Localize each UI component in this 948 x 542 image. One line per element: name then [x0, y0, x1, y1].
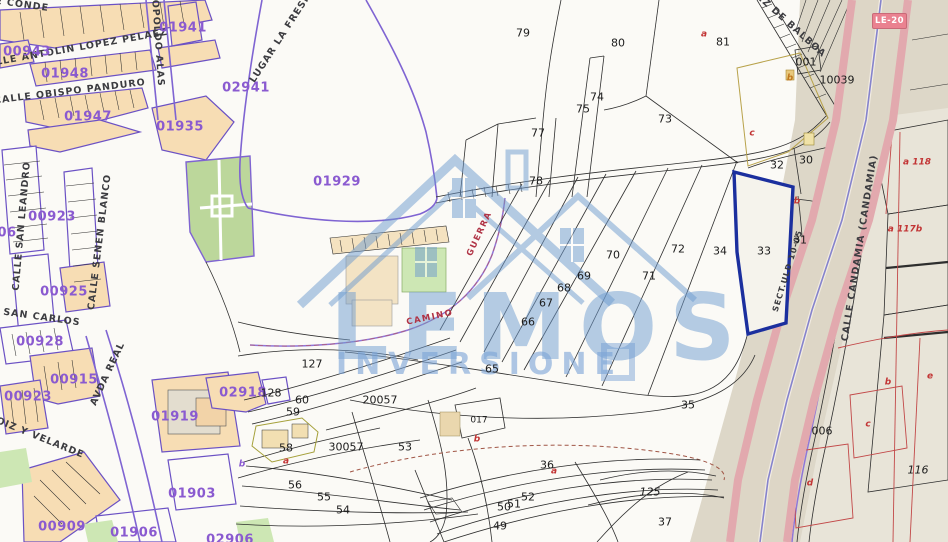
parcel-number-71: 71 [642, 271, 656, 282]
block-code-00928: 00928 [16, 336, 64, 349]
parcel-number-77: 77 [531, 128, 545, 139]
sub-letter-a: a [551, 468, 557, 477]
parcel-number-51: 51 [507, 499, 521, 510]
map-labels: E CONDECALLE ANTOLIN LOPEZ PELAEZCALLE O… [0, 0, 948, 542]
path-label-camino: CAMINO [406, 309, 455, 327]
parcel-number-68: 68 [557, 283, 571, 294]
sub-letter-a-117b: a 117b [888, 226, 922, 235]
parcel-number-67: 67 [539, 298, 553, 309]
parcel-number-81: 81 [716, 37, 730, 48]
street-name-daoiz-y-velarde: DAOIZ Y VELARDE [0, 410, 85, 460]
parcel-number-20057: 20057 [363, 395, 398, 406]
street-name-ez-de-balboa: EZ DE BALBOA [755, 0, 828, 59]
parcel-number-54: 54 [336, 505, 350, 516]
block-code-00925: 00925 [40, 286, 88, 299]
sub-letter-b: b [885, 379, 891, 388]
path-label-guerra: GUERRA [466, 210, 494, 257]
block-code-00909: 00909 [38, 521, 86, 534]
parcel-number-49: 49 [493, 521, 507, 532]
parcel-number-30: 30 [799, 155, 813, 166]
parcel-number-58: 58 [279, 443, 293, 454]
block-code-02906: 02906 [206, 534, 254, 542]
block-code-00943: 00943 [3, 46, 51, 59]
block-code-02941: 02941 [222, 82, 270, 95]
parcel-number-60: 60 [295, 395, 309, 406]
sub-letter-b: b [787, 75, 793, 84]
sub-letter-a-118: a 118 [903, 159, 931, 168]
parcel-number-001: 001 [796, 57, 817, 68]
cadastral-map: LEMOS INVERSIONE LE-20 E CONDECALLE ANTO… [0, 0, 948, 542]
sub-letter-b: b [474, 436, 480, 445]
block-code-01947: 01947 [64, 111, 112, 124]
block-code-01935: 01935 [156, 121, 204, 134]
parcel-number-75: 75 [576, 104, 590, 115]
block-code-00915: 00915 [50, 374, 98, 387]
block-code-00923: 00923 [4, 391, 52, 404]
parcel-number-55: 55 [317, 492, 331, 503]
street-name-calle-obispo-panduro: CALLE OBISPO PANDURO [0, 78, 146, 106]
parcel-number-32: 32 [770, 160, 784, 171]
street-name-calle-senen-blanco: CALLE SENEN BLANCO [87, 173, 113, 310]
parcel-number-125: 125 [640, 487, 661, 498]
block-code-01948: 01948 [41, 68, 89, 81]
parcel-number-128: 128 [261, 388, 282, 399]
street-name-e-conde: E CONDE [0, 0, 49, 13]
parcel-number-70: 70 [606, 250, 620, 261]
parcel-number-37: 37 [658, 517, 672, 528]
sub-letter-c: c [865, 421, 870, 430]
sub-letter-a: a [701, 31, 707, 40]
block-code-01941: 01941 [159, 22, 207, 35]
parcel-number-53: 53 [398, 442, 412, 453]
parcel-number-80: 80 [611, 38, 625, 49]
parcel-number-69: 69 [577, 271, 591, 282]
parcel-number-73: 73 [658, 114, 672, 125]
parcel-number-56: 56 [288, 480, 302, 491]
parcel-number-66: 66 [521, 317, 535, 328]
sub-letter-a: a [283, 458, 289, 467]
parcel-number-35: 35 [681, 400, 695, 411]
parcel-number-59: 59 [286, 407, 300, 418]
block-code-01929: 01929 [313, 176, 361, 189]
parcel-number-33: 33 [757, 246, 771, 257]
parcel-number-30057: 30057 [329, 442, 364, 453]
block-code-01903: 01903 [168, 488, 216, 501]
parcel-number-52: 52 [521, 492, 535, 503]
block-code-01919: 01919 [151, 411, 199, 424]
street-name-e-san-carlos: E SAN CARLOS [0, 306, 81, 328]
sub-letter-b: b [239, 461, 245, 470]
parcel-number-34: 34 [713, 246, 727, 257]
parcel-number-79: 79 [516, 28, 530, 39]
parcel-number-006: 006 [812, 426, 833, 437]
parcel-number-72: 72 [671, 244, 685, 255]
parcel-number-116: 116 [908, 465, 929, 476]
parcel-number-65: 65 [485, 364, 499, 375]
street-name-lugar-la-fresn: LUGAR LA FRESN [248, 0, 313, 85]
sub-letter-c: c [749, 130, 754, 139]
parcel-number-74: 74 [590, 92, 604, 103]
block-code-00923: 00923 [28, 211, 76, 224]
block-code-06: 06 [0, 227, 17, 240]
street-name-calle-candamia-candamia-: CALLE CANDAMIA (CANDAMIA) [841, 154, 880, 342]
sub-letter-e: e [927, 373, 933, 382]
parcel-number-10039: 10039 [820, 75, 855, 86]
parcel-number-017: 017 [470, 417, 487, 426]
block-code-01906: 01906 [110, 527, 158, 540]
parcel-number-31: 31 [793, 235, 807, 246]
street-name-leopoldo-alas: LEOPOLDO ALAS [149, 0, 166, 87]
parcel-number-78: 78 [529, 176, 543, 187]
sub-letter-d: d [807, 480, 813, 489]
sub-letter-b: b [794, 198, 800, 207]
parcel-number-127: 127 [302, 359, 323, 370]
